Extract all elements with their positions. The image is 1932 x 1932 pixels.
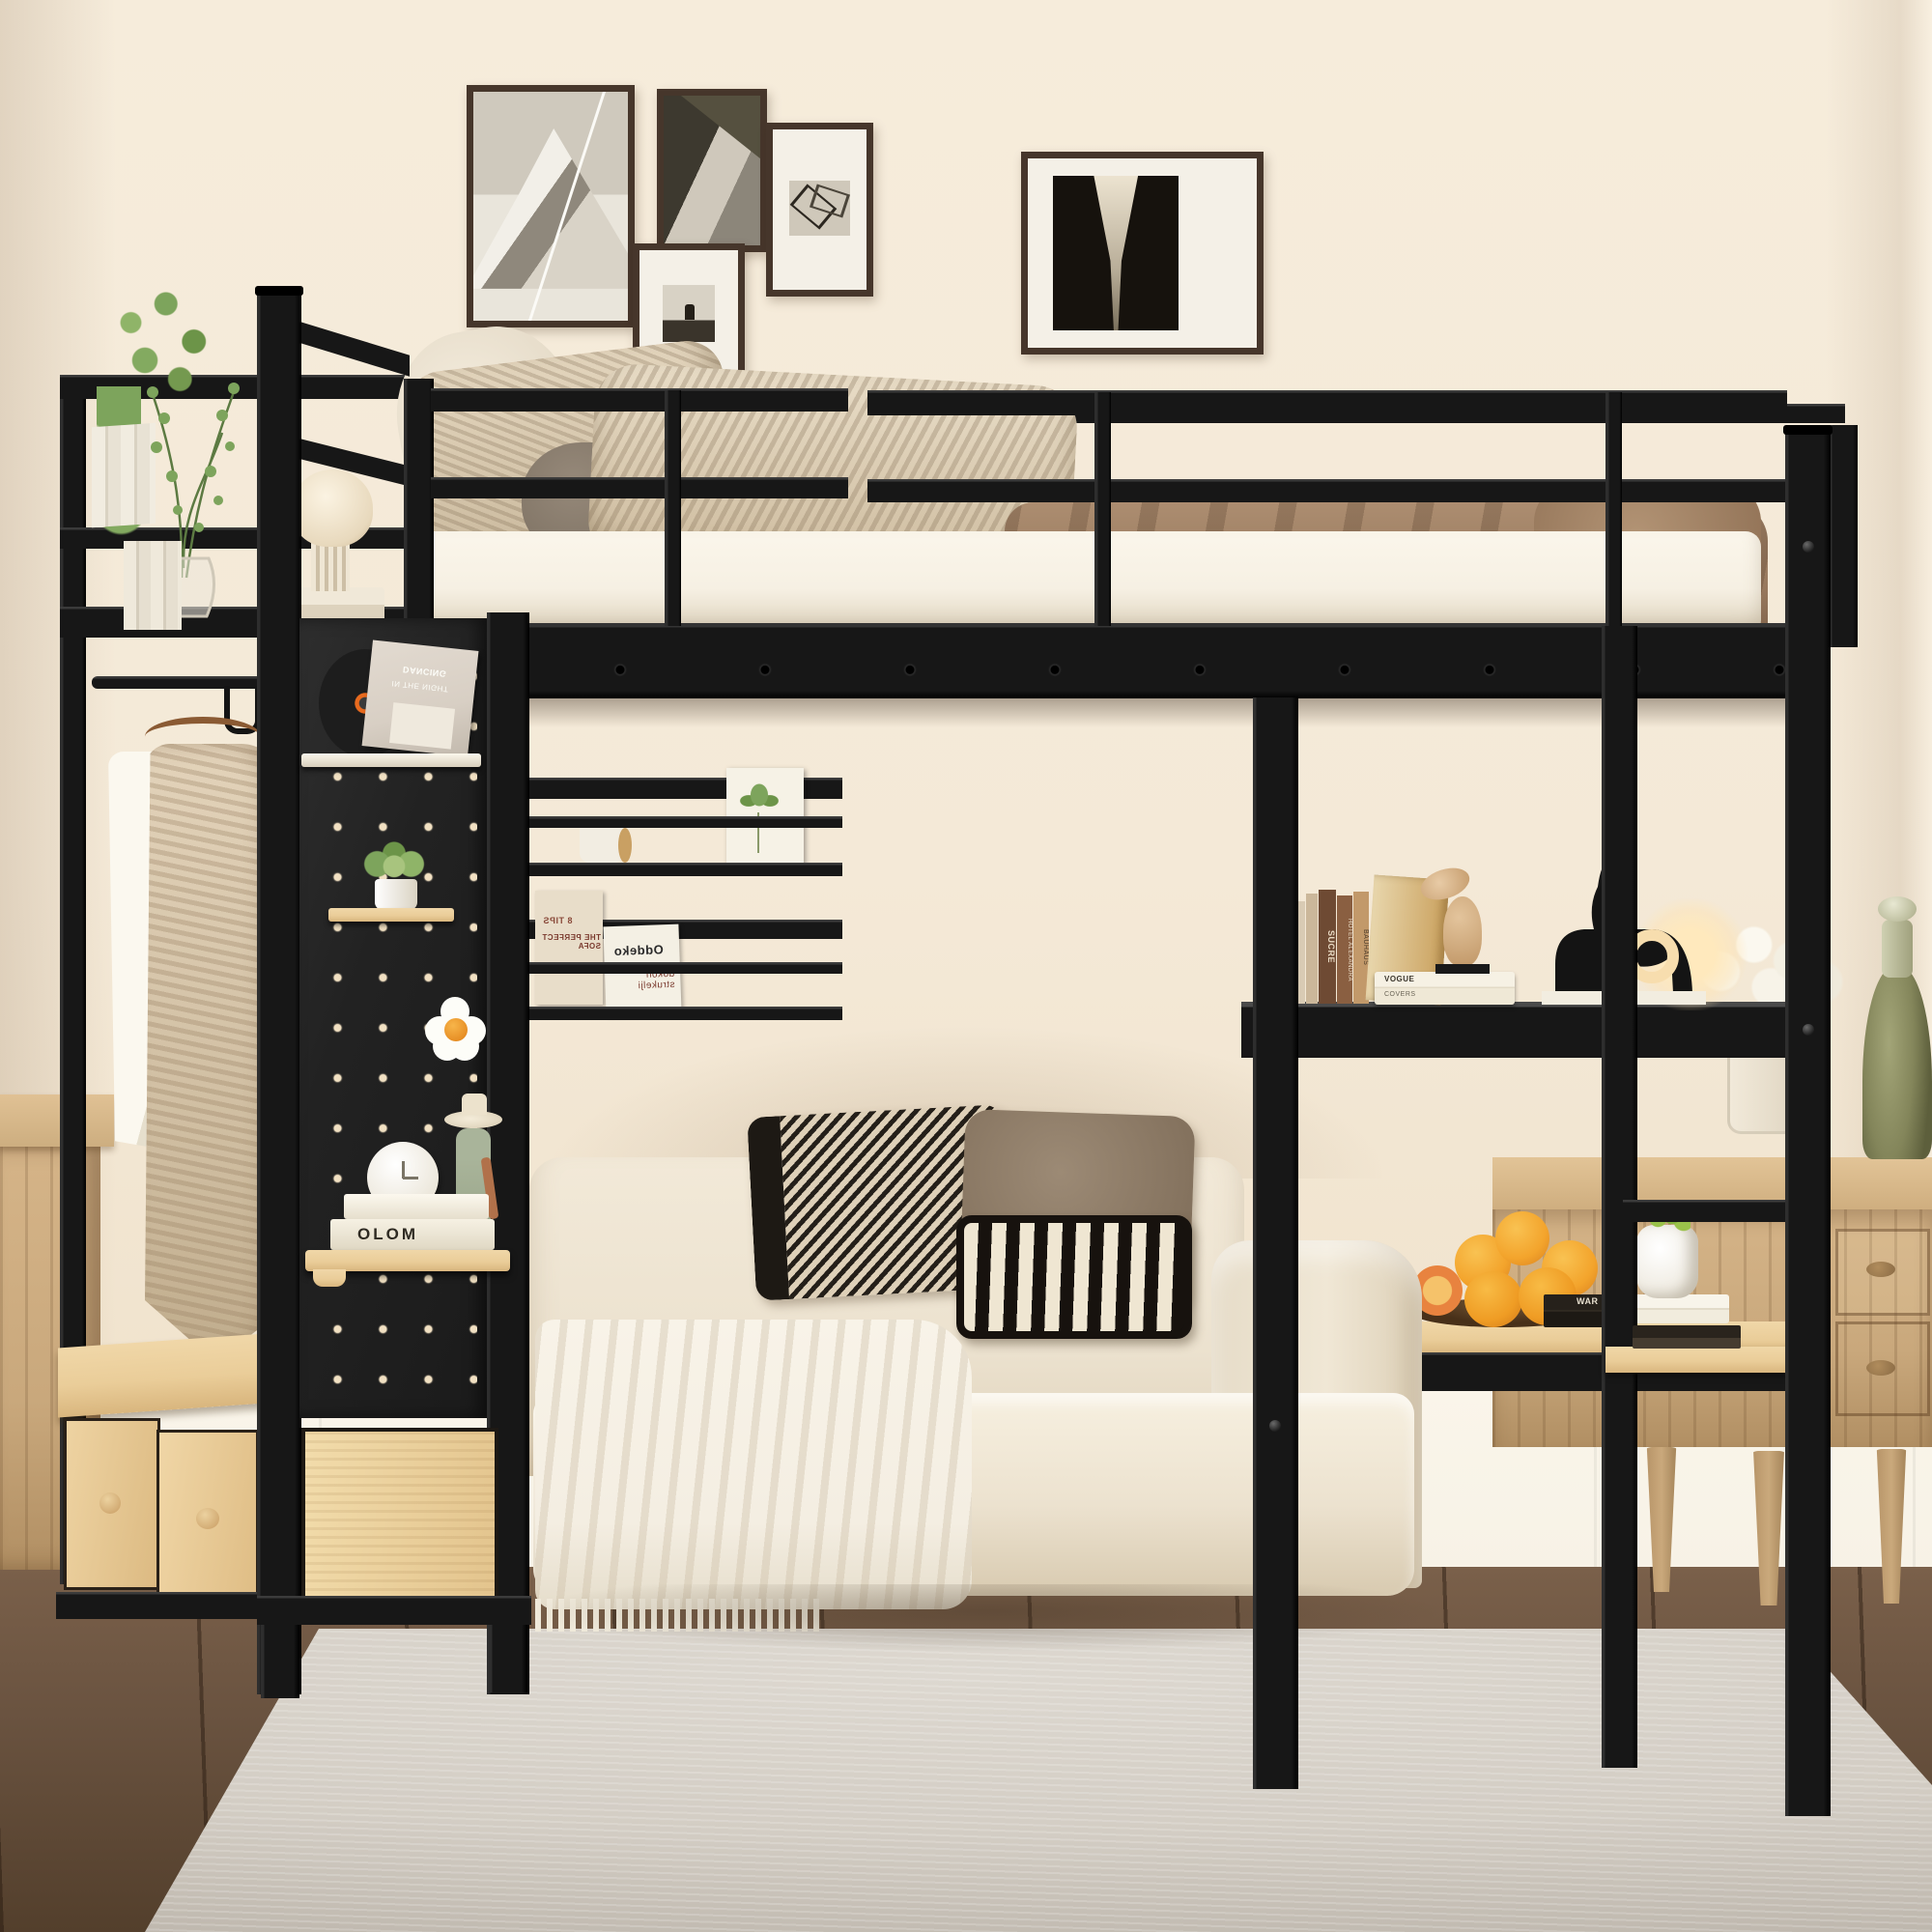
guardrail-support-1 [665, 390, 681, 626]
cork-coaster [618, 828, 632, 863]
sleeve-label [389, 702, 455, 749]
drawer-knob [196, 1508, 219, 1529]
guardrail-mid-right-section [867, 479, 1787, 502]
column-left-rail [257, 292, 301, 1694]
post-bolt-2 [1803, 1024, 1814, 1036]
guardrail-support-3 [1605, 392, 1622, 626]
orange-4 [1464, 1271, 1522, 1327]
guardrail-support-2 [1094, 392, 1111, 626]
clock-shelf-bracket [313, 1269, 346, 1287]
leg-bolt [1269, 1420, 1281, 1432]
flower-center-knob [444, 1018, 468, 1041]
step-book [1633, 1325, 1741, 1349]
bed-back-right-post [1829, 425, 1858, 647]
stacked-books: VOGUE COVERS [1375, 972, 1515, 1005]
right-corner-post [1785, 432, 1831, 1816]
sofa-pillow-striped-lumbar [956, 1215, 1192, 1339]
white-books-under-vase [1625, 1294, 1729, 1323]
column-foot-right [489, 1625, 527, 1692]
picture-frame-corridor [657, 89, 767, 252]
bench-drawer-2 [156, 1430, 259, 1602]
shelf-front-rail [522, 962, 842, 974]
bench-base-rail [56, 1592, 261, 1619]
magazine-sofa-tips: 8 TIPS THE PERFECT SOFA [535, 891, 603, 1005]
bird-stand [1435, 964, 1490, 974]
ladder-inner-rail [1602, 626, 1637, 1768]
forest-inner-photo [1053, 176, 1179, 331]
magazine-brand: Oddeko [613, 942, 664, 958]
book-spine-sucre: SUCRE [1319, 890, 1336, 1004]
branch-leaves [147, 383, 240, 532]
book-upper [344, 1194, 489, 1219]
book-spine-hotel: HOTEL ALEXANDRA [1337, 895, 1352, 1004]
guardrail-top-right-section [867, 390, 1787, 415]
column-cap [255, 286, 303, 296]
right-post-cap [1783, 425, 1833, 435]
sideboard-drawer-knob-2 [1866, 1360, 1895, 1376]
desk-book-spine: WAR [1577, 1296, 1599, 1306]
magazine-subheading: THE PERFECT SOFA [537, 933, 601, 951]
shelf-base [522, 1007, 842, 1020]
deer-inner-photo [663, 285, 714, 342]
face-vase [1636, 1225, 1698, 1298]
flower-hook [425, 997, 487, 1059]
abstract-inner-photo [789, 181, 849, 235]
bird-body [1443, 896, 1482, 966]
book-spine-olom: OLOM [357, 1225, 418, 1244]
book-stack-subtitle: COVERS [1384, 991, 1416, 998]
clock-shelf-board [305, 1250, 510, 1271]
sideboard-drawer-knob-1 [1866, 1262, 1895, 1277]
figurine-hat-top [462, 1094, 487, 1115]
corridor-photo [664, 96, 760, 245]
drawer-knob [99, 1492, 121, 1514]
mattress [404, 531, 1761, 636]
ladder-rung-1 [1623, 1200, 1787, 1222]
abstract-photo [773, 129, 867, 290]
left-dresser-top [0, 1094, 114, 1147]
shelf-books-stack: OLOM [330, 1194, 495, 1250]
succulent-shelf [328, 908, 454, 922]
book-spine [1306, 894, 1318, 1004]
corridor-roof [681, 96, 760, 158]
deer-silhouette [685, 304, 695, 320]
decanter-neck [1882, 920, 1913, 978]
book-stack-title: VOGUE [1384, 975, 1414, 983]
column-bottom-rail [257, 1596, 531, 1625]
wall-shelf-upper [522, 778, 842, 876]
decanter-stopper [1878, 896, 1917, 922]
vinyl-title-line1: DANCING [403, 665, 447, 679]
bench-top [58, 1333, 266, 1417]
pegboard-column: DANCING IN THE NIGHT [253, 286, 535, 1706]
succulent-plant [355, 838, 433, 885]
ladder-wood-step [1605, 1347, 1799, 1373]
wall-shelf-lower: 8 TIPS THE PERFECT SOFA Oddeko dokon str… [522, 920, 842, 1020]
head-shelf-books [124, 541, 182, 630]
column-foot-left [261, 1625, 299, 1698]
column-bottom-panel [301, 1428, 498, 1604]
vinyl-sleeve: DANCING IN THE NIGHT [362, 640, 479, 757]
magazine-heading: 8 TIPS [543, 916, 573, 925]
bedroom-loft-bed-scene: 8 TIPS THE PERFECT SOFA Oddeko dokon str… [0, 0, 1932, 1932]
picture-frame-abstract [766, 123, 873, 297]
succulent-pot [375, 879, 417, 910]
picture-frame-forest [1021, 152, 1264, 355]
wooden-bird-figurine [1418, 869, 1486, 976]
clock-hand-minute [403, 1177, 418, 1179]
sofa-floor-shadow [522, 1584, 1449, 1652]
bench-drawer-1 [64, 1418, 160, 1590]
forest-sky [1089, 176, 1144, 331]
shelf-front-rail [522, 816, 842, 828]
book-olom: OLOM [330, 1219, 495, 1250]
orange-2 [1495, 1211, 1549, 1265]
mid-front-leg [1253, 697, 1298, 1789]
vinyl-title-line2: IN THE NIGHT [391, 679, 449, 694]
mountain-shape [473, 128, 628, 289]
shelf-base [522, 863, 842, 876]
post-bolt-1 [1803, 541, 1814, 553]
sofa-throw-blanket [535, 1320, 972, 1609]
forest-road-photo [1028, 158, 1257, 348]
record-shelf-ledge [301, 753, 481, 767]
